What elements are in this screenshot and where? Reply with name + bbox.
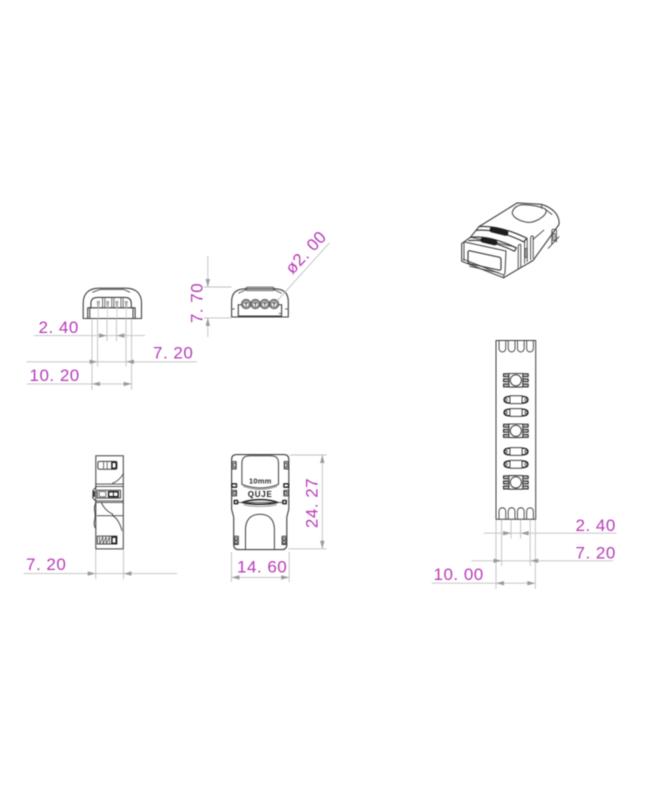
svg-text:10mm: 10mm (249, 477, 272, 486)
svg-text:24. 27: 24. 27 (303, 478, 322, 528)
svg-text:2. 40: 2. 40 (39, 318, 79, 337)
svg-text:7. 20: 7. 20 (153, 343, 193, 362)
svg-text:10. 20: 10. 20 (30, 366, 80, 385)
svg-text:7. 70: 7. 70 (187, 283, 206, 323)
svg-text:ø2. 00: ø2. 00 (282, 227, 331, 277)
svg-text:7. 20: 7. 20 (26, 555, 66, 574)
svg-text:7. 20: 7. 20 (576, 544, 616, 563)
svg-text:10. 00: 10. 00 (434, 565, 484, 584)
svg-text:QUJE: QUJE (248, 490, 273, 499)
svg-text:2. 40: 2. 40 (576, 516, 616, 535)
svg-text:14. 60: 14. 60 (237, 558, 287, 577)
